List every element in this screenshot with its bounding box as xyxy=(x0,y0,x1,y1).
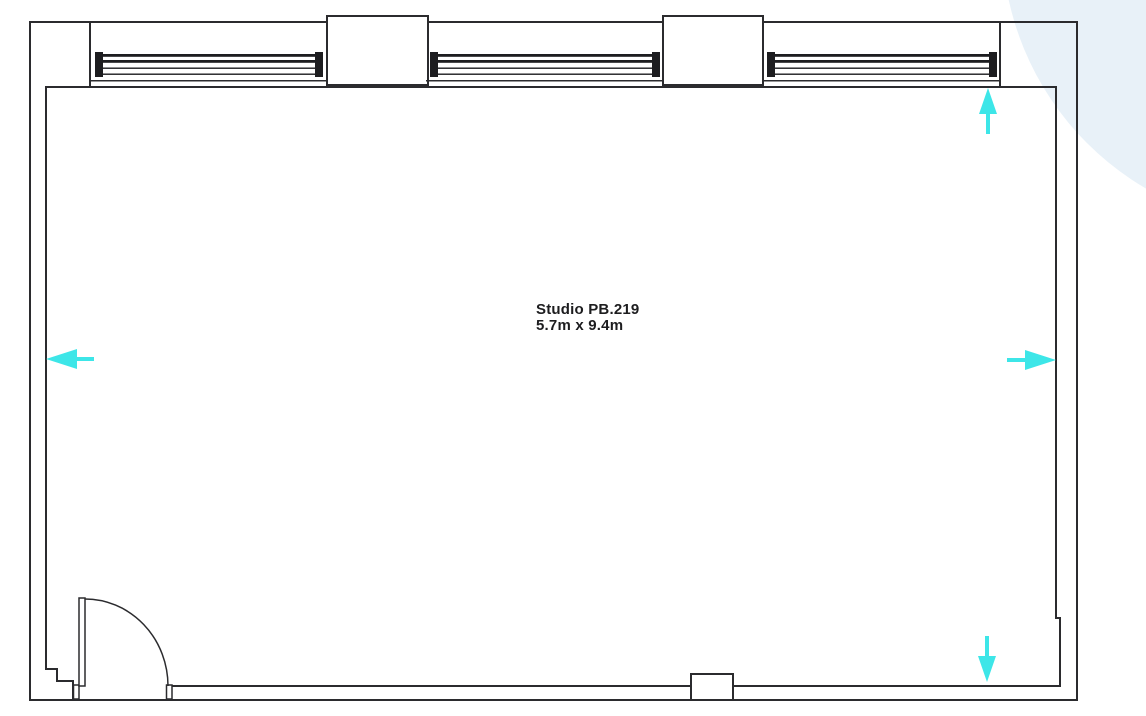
entry-door xyxy=(79,598,168,686)
window-glazing-line xyxy=(767,74,997,75)
room-name: Studio PB.219 xyxy=(536,302,639,318)
window-glazing-line xyxy=(767,68,997,69)
window-glazing-line xyxy=(95,74,323,75)
door-leaf xyxy=(79,598,85,686)
window-sill xyxy=(426,80,664,82)
window-glazing-line xyxy=(95,68,323,69)
outer-wall xyxy=(30,22,1077,700)
window-glazing-line xyxy=(430,60,660,63)
window-1 xyxy=(91,52,327,82)
window-sill xyxy=(763,80,1001,82)
window-end-cap xyxy=(652,52,660,77)
window-end-cap xyxy=(315,52,323,77)
window-end-cap xyxy=(989,52,997,77)
window-end-cap xyxy=(95,52,103,77)
window-glazing-line xyxy=(430,74,660,75)
arrow-down-icon xyxy=(978,636,996,682)
arrow-up-icon xyxy=(979,88,997,134)
window-glazing-line xyxy=(767,54,997,57)
window-pier xyxy=(663,16,763,85)
window-glazing-line xyxy=(95,54,323,57)
window-end-cap xyxy=(430,52,438,77)
wall-pilaster xyxy=(691,674,733,700)
inner-wall xyxy=(46,87,1060,700)
window-sill xyxy=(91,80,327,82)
window-3 xyxy=(763,52,1001,82)
window-glazing-line xyxy=(95,60,323,63)
window-glazing-line xyxy=(430,54,660,57)
arrow-right-icon xyxy=(1007,350,1056,370)
room-dimensions: 5.7m x 9.4m xyxy=(536,318,639,334)
door-jamb-right xyxy=(167,685,173,699)
window-glazing-line xyxy=(430,68,660,69)
window-end-cap xyxy=(767,52,775,77)
floor-plan-page: Studio PB.219 5.7m x 9.4m xyxy=(0,0,1146,716)
room-label: Studio PB.219 5.7m x 9.4m xyxy=(536,302,639,334)
window-glazing-line xyxy=(767,60,997,63)
door-swing-arc xyxy=(85,599,168,686)
door-jamb-left xyxy=(74,685,80,699)
floor-plan-drawing xyxy=(0,0,1146,716)
arrow-left-icon xyxy=(46,349,94,369)
window-2 xyxy=(426,52,664,82)
window-pier xyxy=(327,16,428,85)
